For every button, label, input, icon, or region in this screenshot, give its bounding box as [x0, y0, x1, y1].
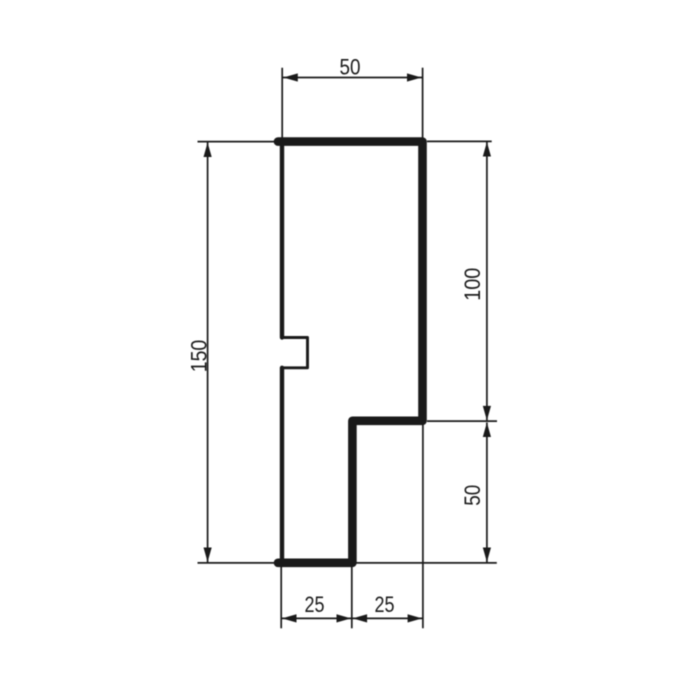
- svg-text:50: 50: [340, 55, 361, 80]
- svg-text:100: 100: [460, 268, 485, 301]
- svg-text:25: 25: [375, 592, 395, 617]
- svg-text:50: 50: [460, 485, 485, 506]
- svg-text:150: 150: [186, 340, 211, 373]
- svg-text:25: 25: [305, 592, 325, 617]
